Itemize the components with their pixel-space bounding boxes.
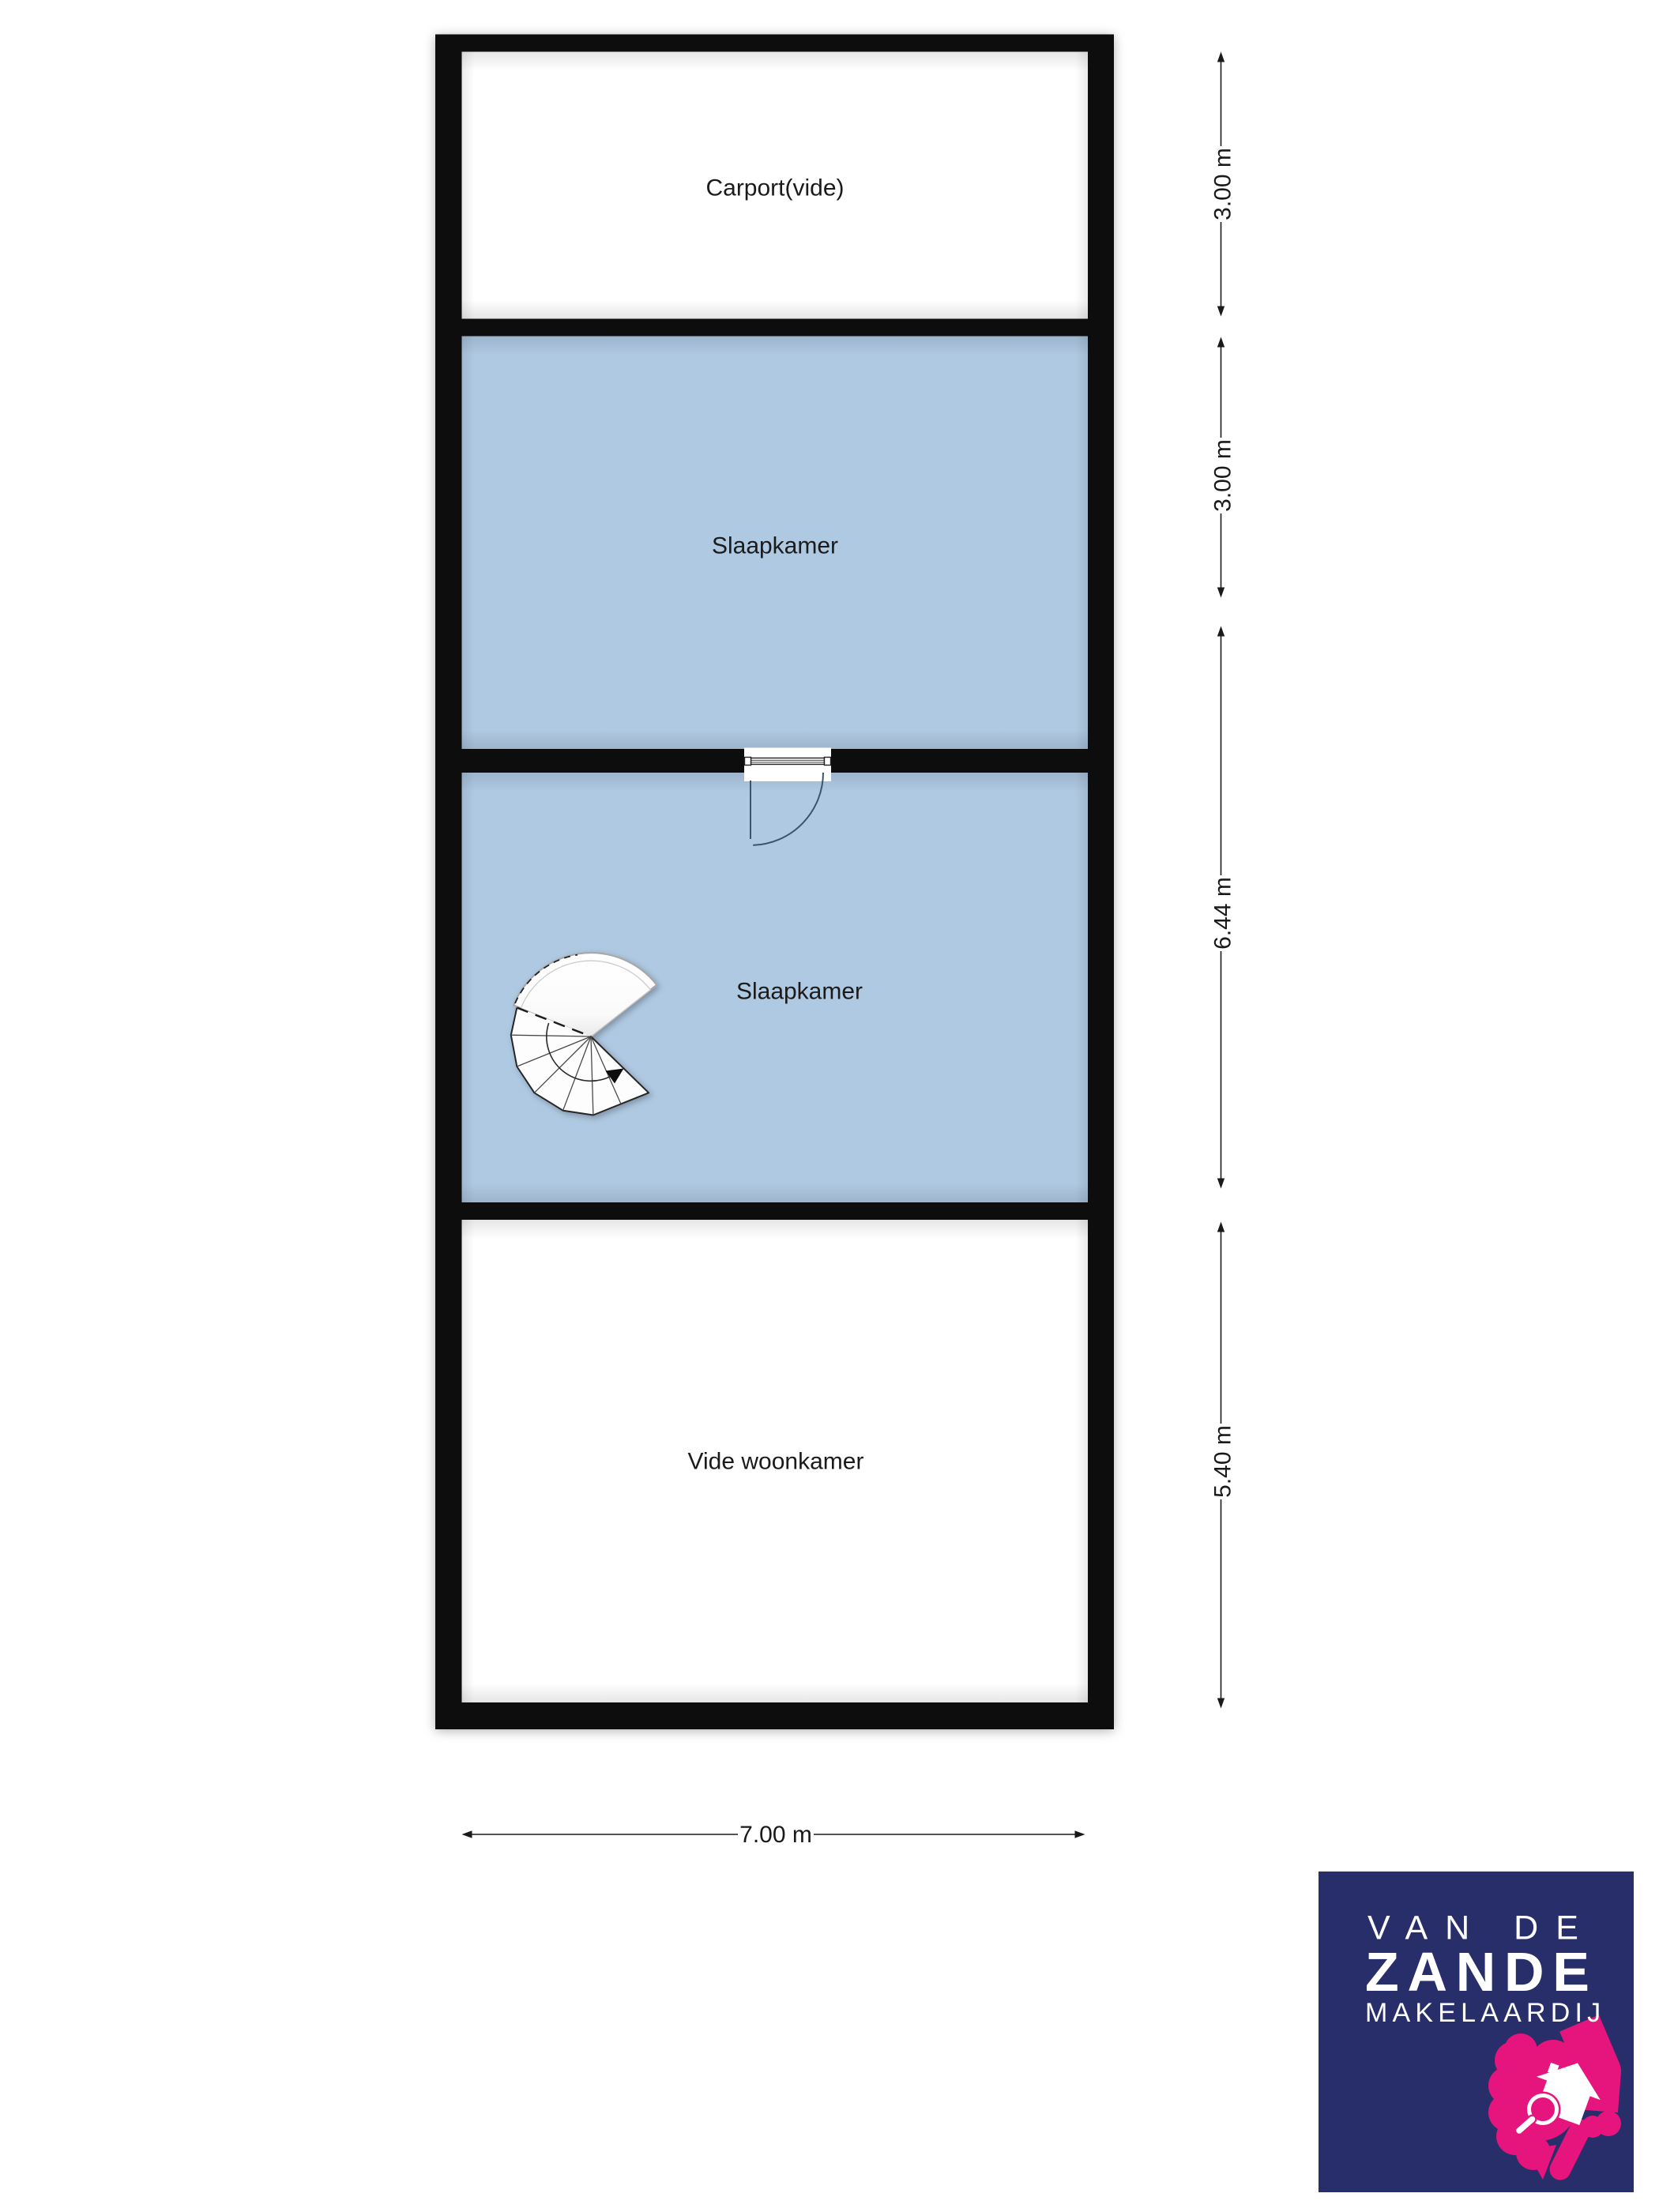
svg-text:Carport(vide): Carport(vide) (705, 175, 844, 201)
svg-text:Slaapkamer: Slaapkamer (712, 533, 838, 559)
svg-text:MAKELAARDIJ: MAKELAARDIJ (1365, 1998, 1605, 2028)
svg-text:3.00 m: 3.00 m (1210, 148, 1236, 220)
svg-text:3.00 m: 3.00 m (1210, 439, 1236, 512)
svg-text:5.40 m: 5.40 m (1210, 1425, 1236, 1498)
svg-text:Slaapkamer: Slaapkamer (736, 979, 863, 1005)
svg-text:7.00 m: 7.00 m (739, 1822, 812, 1848)
svg-text:Vide woonkamer: Vide woonkamer (688, 1449, 864, 1475)
svg-text:ZANDE: ZANDE (1365, 1941, 1598, 2003)
svg-text:6.44 m: 6.44 m (1210, 877, 1236, 950)
